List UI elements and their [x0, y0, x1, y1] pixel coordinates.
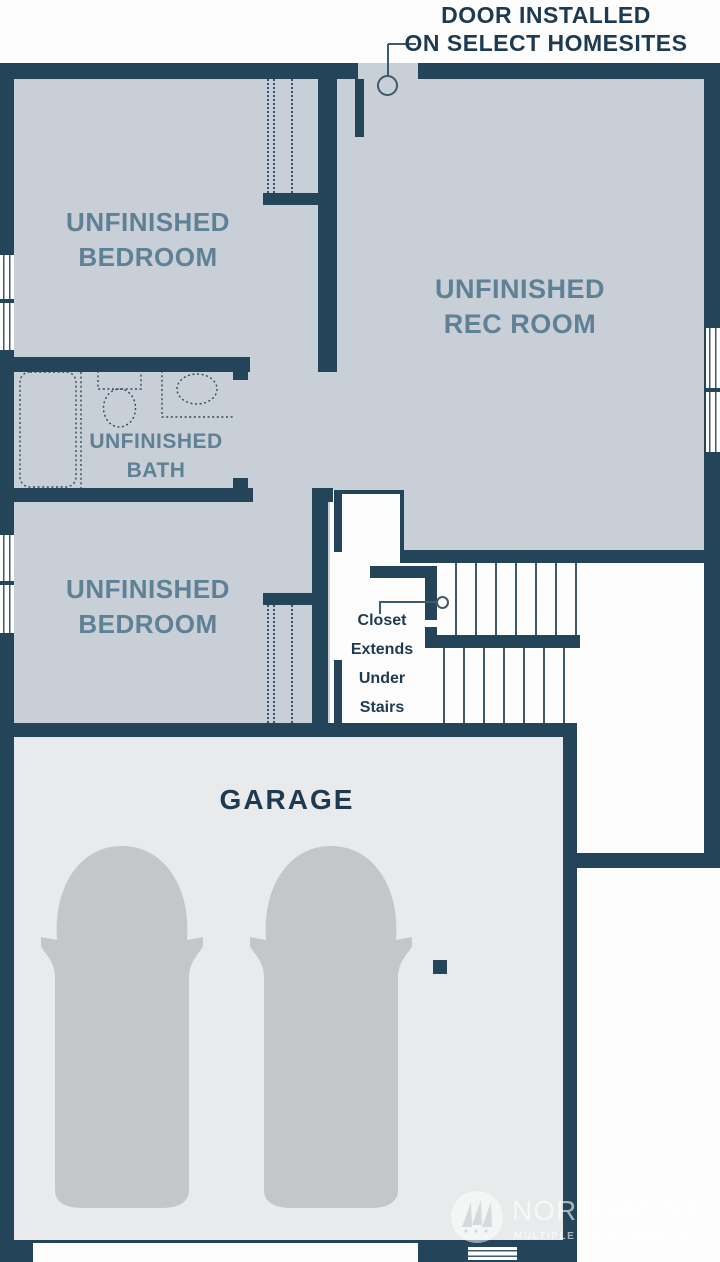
wall-closet-stub-top	[263, 193, 318, 205]
wall-stair-closet-upper	[334, 490, 342, 552]
room-label-line: UNFINISHED	[370, 272, 670, 307]
closet-annotation-line: Stairs	[332, 693, 432, 722]
room-label-line: UNFINISHED	[36, 427, 276, 456]
watermark-logo-icon	[451, 1191, 503, 1243]
wall-bath-bottom	[0, 488, 253, 502]
wall-bedroom2-right	[312, 488, 328, 723]
closet-rod-dashes-bottom	[291, 605, 293, 723]
stairs-upper-flight	[437, 563, 578, 637]
window-divider	[0, 581, 14, 585]
toilet-bowl-icon	[104, 389, 136, 427]
closet-leader-line	[380, 601, 437, 603]
floor-plan: DOOR INSTALLED ON SELECT HOMESITES UNFIN…	[0, 0, 720, 1262]
garage-post	[433, 960, 447, 974]
door-annotation: DOOR INSTALLED ON SELECT HOMESITES	[396, 1, 696, 57]
door-leader-line	[387, 44, 389, 76]
wall-closet-stub-bottom	[263, 593, 318, 605]
wall-garage-top	[0, 723, 577, 737]
closet-rod-dashes-top	[291, 79, 293, 193]
wall-right	[704, 63, 720, 868]
wall-bedroom2-right-cap	[312, 488, 333, 502]
watermark-name: NORTHWEST	[512, 1195, 701, 1227]
window-divider	[706, 388, 720, 392]
room-label-bedroom-top: UNFINISHED BEDROOM	[28, 205, 268, 275]
stair-landing-floor	[577, 737, 704, 853]
door-annotation-line2: ON SELECT HOMESITES	[396, 29, 696, 57]
line-stair-left	[400, 490, 404, 550]
wall-stair-mid	[425, 635, 580, 648]
wall-bottom-left-corner	[0, 1240, 33, 1262]
wall-top-right	[418, 63, 720, 79]
closet-annotation: Closet Extends Under Stairs	[332, 606, 432, 722]
room-label-garage: GARAGE	[167, 784, 407, 816]
room-label-line: UNFINISHED	[28, 572, 268, 607]
garage-door-opening	[33, 1243, 418, 1262]
watermark-subtitle: MULTIPLE LISTING SERVICE	[514, 1231, 688, 1242]
wall-stairwell-top	[400, 550, 704, 563]
wall-top-left	[0, 63, 358, 79]
trees-icon	[451, 1191, 503, 1243]
stairs-lower-flight	[425, 648, 578, 723]
door-annotation-line1: DOOR INSTALLED	[396, 1, 696, 29]
room-label-rec-room: UNFINISHED REC ROOM	[370, 272, 670, 342]
garage-label-text: GARAGE	[220, 784, 355, 815]
closet-annotation-line: Extends	[332, 635, 432, 664]
closet-annotation-line: Under	[332, 664, 432, 693]
closet-location-marker	[436, 596, 449, 609]
room-label-line: REC ROOM	[370, 307, 670, 342]
wall-bath-top	[0, 357, 250, 372]
closet-rod-dashes-bottom	[273, 605, 275, 723]
car-icon	[242, 838, 420, 1210]
wall-bath-door-stub-top	[233, 357, 248, 380]
window-divider	[0, 299, 14, 303]
watermark: NORTHWEST MULTIPLE LISTING SERVICE	[451, 1191, 711, 1251]
wall-landing-bottom	[563, 853, 720, 868]
wall-left	[0, 63, 14, 1240]
wall-bedroom-rec-divider	[318, 79, 337, 372]
closet-rod-dashes-top	[267, 79, 269, 193]
room-label-bath: UNFINISHED BATH	[36, 427, 276, 485]
closet-annotation-line: Closet	[332, 606, 432, 635]
closet-rod-dashes-top	[273, 79, 275, 193]
sink-icon	[177, 374, 217, 404]
room-label-bedroom-bottom: UNFINISHED BEDROOM	[28, 572, 268, 642]
room-label-line: BATH	[36, 456, 276, 485]
room-label-line: BEDROOM	[28, 240, 268, 275]
car-icon	[33, 838, 211, 1210]
room-label-line: BEDROOM	[28, 607, 268, 642]
wall-garage-right	[563, 723, 577, 1262]
wall-door-stub	[355, 79, 364, 137]
line-stair-top	[334, 490, 404, 494]
door-location-marker	[377, 75, 398, 96]
room-label-line: UNFINISHED	[28, 205, 268, 240]
garage-door-header-line	[30, 1240, 420, 1243]
